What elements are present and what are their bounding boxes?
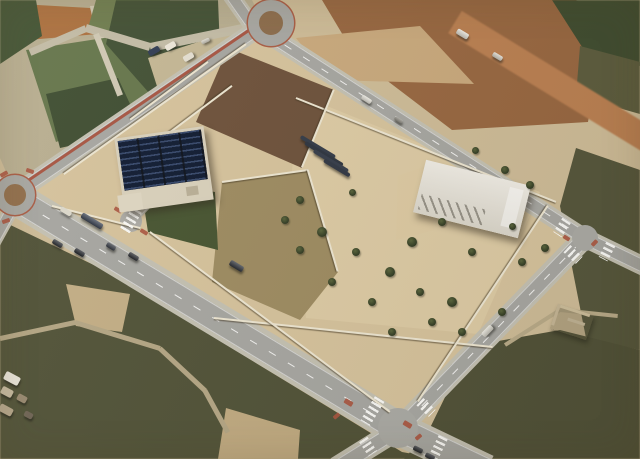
shrub xyxy=(428,318,436,326)
shrub xyxy=(328,278,336,286)
roundabout-north xyxy=(248,0,294,46)
shrub xyxy=(388,328,396,336)
shrub xyxy=(281,216,289,224)
shrub xyxy=(447,297,457,307)
shrub xyxy=(416,288,424,296)
ruin-walls-part-2 xyxy=(567,318,585,326)
junction-east xyxy=(572,225,598,251)
shrub xyxy=(518,258,526,266)
shrub xyxy=(407,237,417,247)
building-solar-roof xyxy=(114,126,213,212)
shrub xyxy=(472,147,479,154)
shrub xyxy=(349,189,356,196)
shrub xyxy=(498,308,506,316)
shrub xyxy=(501,166,509,174)
shrub xyxy=(526,181,534,189)
shrub xyxy=(438,218,446,226)
shrub xyxy=(317,227,327,237)
building-solar-roof-part-panels xyxy=(118,129,208,190)
shrub xyxy=(296,246,304,254)
shrub xyxy=(385,267,395,277)
shrub xyxy=(296,196,304,204)
building-solar-roof-part-3 xyxy=(186,185,199,196)
shrub xyxy=(368,298,376,306)
aerial-photo xyxy=(0,0,640,459)
shrub xyxy=(541,244,549,252)
shrub xyxy=(458,328,466,336)
junction-south xyxy=(378,408,418,448)
shrub xyxy=(468,248,476,256)
building-solar-roof-part-2 xyxy=(117,192,143,212)
shrub xyxy=(509,223,516,230)
shrub xyxy=(352,248,360,256)
